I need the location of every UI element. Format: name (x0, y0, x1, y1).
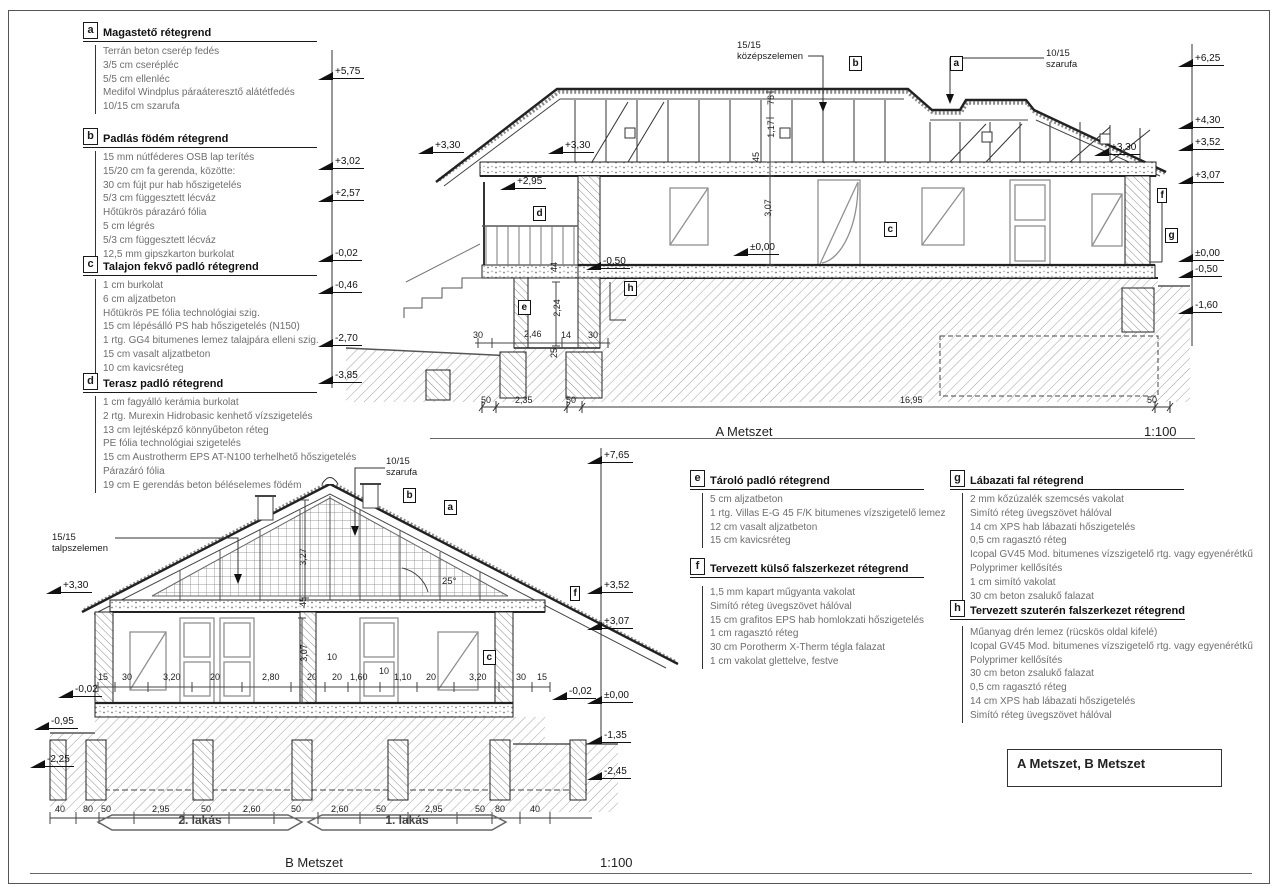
layer-reference-mark: d (533, 206, 546, 221)
dimension-label: 10 (327, 652, 337, 662)
dimension-label: 10 (379, 666, 389, 676)
level-marker: +3,02 (318, 156, 364, 169)
dimension-label: 3,27 (298, 548, 308, 566)
level-triangle-icon (318, 376, 333, 384)
dimension-label: 2,60 (243, 804, 261, 814)
level-triangle-icon (1094, 148, 1109, 156)
legend-item: 19 cm E gerendás beton béléselemes födém (103, 479, 353, 493)
level-marker: -0,02 (58, 684, 102, 697)
dimension-label: 76 (766, 95, 776, 105)
level-triangle-icon (587, 772, 602, 780)
level-triangle-icon (587, 736, 602, 744)
legend-item: 15 cm lépésálló PS hab hőszigetelés (N15… (103, 320, 353, 334)
legend-title: Tervezett külső falszerkezet rétegrend (710, 563, 908, 575)
level-triangle-icon (587, 622, 602, 630)
legend-title: Magastető rétegrend (103, 27, 211, 39)
legend-item: 1,5 mm kapart műgyanta vakolat (710, 586, 960, 600)
level-triangle-icon (34, 722, 49, 730)
level-triangle-icon (30, 760, 45, 768)
level-triangle-icon (1178, 121, 1193, 129)
legend-key-c: c (83, 256, 98, 273)
level-marker: -0,95 (34, 716, 78, 729)
level-triangle-icon (587, 456, 602, 464)
level-marker: +2,57 (318, 188, 364, 201)
level-triangle-icon (318, 162, 333, 170)
legend-item: 5/5 cm ellenléc (103, 73, 353, 87)
level-triangle-icon (1178, 270, 1193, 278)
legend-item: Simító réteg üvegszövet hálóval (970, 709, 1220, 723)
dimension-label: 3,07 (763, 199, 773, 217)
section-a-title: A Metszet (715, 424, 772, 439)
legend-item: 13 cm lejtésképző könnyűbeton réteg (103, 424, 353, 438)
legend-item: Párazáró fólia (103, 465, 353, 479)
dimension-label: 80 (495, 804, 505, 814)
legend-key-e: e (690, 470, 705, 487)
layer-reference-mark: f (570, 586, 580, 601)
layer-reference-mark: b (403, 488, 416, 503)
legend-labazati-fal: gLábazati fal rétegrend 2 mm kőzúzalék s… (950, 470, 1220, 603)
dimension-label: 45 (298, 597, 308, 607)
level-triangle-icon (587, 586, 602, 594)
legend-item: 12 cm vasalt aljzatbeton (710, 521, 960, 535)
bottom-rule (30, 873, 1252, 874)
section-b-title: B Metszet (285, 855, 343, 870)
legend-item: 5 cm aljzatbeton (710, 493, 960, 507)
level-marker: +3,07 (587, 616, 633, 629)
attic-floor-slab (480, 162, 1156, 176)
dimension-label: 50 (101, 804, 111, 814)
layer-reference-mark: f (1157, 188, 1167, 203)
level-marker: +3,30 (46, 580, 92, 593)
drawing-title-box: A Metszet, B Metszet (1007, 749, 1222, 787)
dimension-label: 20 (426, 672, 436, 682)
dimension-label: 14 (561, 330, 571, 340)
layer-reference-mark: b (849, 56, 862, 71)
legend-key-g: g (950, 470, 965, 487)
dimension-label: 3,07 (299, 644, 309, 662)
section-a-title-rule (430, 438, 1195, 439)
legend-title: Tároló padló rétegrend (710, 475, 830, 487)
layer-reference-mark: c (884, 222, 897, 237)
dimension-label: 50 (481, 395, 491, 405)
level-marker: -0,46 (318, 280, 362, 293)
legend-talajon-fekvo: cTalajon fekvő padló rétegrend 1 cm burk… (83, 256, 353, 376)
dimension-label: 3,20 (469, 672, 487, 682)
attic-structure (575, 100, 1150, 162)
dimension-label: 40 (55, 804, 65, 814)
level-triangle-icon (418, 146, 433, 154)
legend-item: 5 cm légrés (103, 220, 353, 234)
legend-item: Műanyag drén lemez (rücskös oldal kifelé… (970, 626, 1220, 640)
dimension-label: 1,17 (766, 120, 776, 138)
level-marker: +7,65 (587, 450, 633, 463)
dimension-label: 20 (210, 672, 220, 682)
legend-item: 15 mm nútféderes OSB lap terítés (103, 151, 353, 165)
dimension-label: 2,24 (552, 299, 562, 317)
level-marker: -2,70 (318, 333, 362, 346)
dimension-label: 16,95 (900, 395, 923, 405)
legend-item: Polyprimer kellősítés (970, 654, 1220, 668)
legend-item: Hőtükrös párazáró fólia (103, 206, 353, 220)
dimension-label: 80 (83, 804, 93, 814)
annotation-label: 25° (442, 576, 456, 587)
drawing-title: A Metszet, B Metszet (1017, 756, 1221, 771)
layer-reference-mark: h (624, 281, 637, 296)
legend-item: 2 mm kőzúzalék szemcsés vakolat (970, 493, 1220, 507)
legend-item: 1 cm simító vakolat (970, 576, 1220, 590)
level-triangle-icon (1178, 306, 1193, 314)
legend-item: 15/20 cm fa gerenda, közötte: (103, 165, 353, 179)
level-marker: -1,60 (1178, 300, 1222, 313)
level-triangle-icon (1178, 59, 1193, 67)
legend-item: Polyprimer kellősítés (970, 562, 1220, 576)
level-triangle-icon (318, 339, 333, 347)
ceiling-slab (110, 600, 545, 612)
dimension-label: 44 (549, 262, 559, 272)
legend-item: Icopal GV45 Mod. bitumenes vízszigetelő … (970, 640, 1220, 654)
layer-reference-mark: g (1165, 228, 1178, 243)
dimension-label: 50 (1147, 395, 1157, 405)
level-marker: +6,25 (1178, 53, 1224, 66)
annotation-label: 10/15 szarufa (1046, 48, 1077, 70)
level-triangle-icon (552, 692, 567, 700)
level-marker: -0,50 (586, 256, 630, 269)
dimension-label: 30 (516, 672, 526, 682)
dimension-label: 2,35 (515, 395, 533, 405)
legend-key-d: d (83, 373, 98, 390)
legend-item: Icopal GV45 Mod. bitumenes vízszigetelő … (970, 548, 1220, 562)
legend-title: Padlás födém rétegrend (103, 133, 228, 145)
legend-magasteto: aMagastető rétegrend Terrán beton cserép… (83, 22, 353, 114)
legend-item: 1 cm vakolat glettelve, festve (710, 655, 960, 669)
legend-item: 2 rtg. Murexin Hidrobasic kenhető vízszi… (103, 410, 353, 424)
legend-title: Tervezett szuterén falszerkezet rétegren… (970, 605, 1185, 617)
legend-item: 1 cm ragasztó réteg (710, 627, 960, 641)
annotation-label: 15/15 középszelemen (737, 40, 803, 62)
legend-item: 15 cm Austrotherm EPS AT-N100 terhelhető… (103, 451, 353, 465)
dimension-label: 2,46 (524, 329, 542, 339)
dimension-label: 30 (473, 330, 483, 340)
legend-item: 10/15 cm szarufa (103, 100, 353, 114)
level-marker: -0,02 (318, 248, 362, 261)
section-b-drawing (30, 440, 690, 882)
legend-item: Simító réteg üvegszövet hálóval (970, 507, 1220, 521)
dimension-label: 50 (291, 804, 301, 814)
legend-item: Simító réteg üvegszövet hálóval (710, 600, 960, 614)
legend-item: 5/3 cm függesztett lécváz (103, 234, 353, 248)
unit-label: 2. lakás (178, 813, 221, 827)
section-a-drawing (310, 30, 1200, 442)
level-marker: +5,75 (318, 66, 364, 79)
legend-item: 3/5 cm cserépléc (103, 59, 353, 73)
legend-szuteren-falszerkezet: hTervezett szuterén falszerkezet rétegre… (950, 600, 1220, 723)
legend-item: 0,5 cm ragasztó réteg (970, 681, 1220, 695)
legend-item: 6 cm aljzatbeton (103, 293, 353, 307)
legend-key-b: b (83, 128, 98, 145)
section-a-scale: 1:100 (1144, 424, 1177, 439)
dimension-label: 45 (751, 152, 761, 162)
dimension-label: 50 (566, 395, 576, 405)
legend-title: Lábazati fal rétegrend (970, 475, 1084, 487)
legend-item: 14 cm XPS hab lábazati hőszigetelés (970, 695, 1220, 709)
level-marker: +3,30 (418, 140, 464, 153)
annotation-label: 15/15 talpszelemen (52, 532, 108, 554)
legend-item: Terrán beton cserép fedés (103, 45, 353, 59)
dimension-label: 30 (122, 672, 132, 682)
level-marker: +3,07 (1178, 170, 1224, 183)
level-triangle-icon (1178, 254, 1193, 262)
legend-item: 14 cm XPS hab lábazati hőszigetelés (970, 521, 1220, 535)
dimension-label: 20 (307, 672, 317, 682)
legend-item: 30 cm Porotherm X-Therm tégla falazat (710, 641, 960, 655)
legend-item: 15 cm grafitos EPS hab homlokzati hőszig… (710, 614, 960, 628)
unit-arrows (98, 815, 506, 830)
dimension-label: 3,20 (163, 672, 181, 682)
level-triangle-icon (500, 182, 515, 190)
legend-item: 1 cm burkolat (103, 279, 353, 293)
floor-slab (95, 703, 513, 717)
legend-item: 30 cm beton zsalukő falazat (970, 667, 1220, 681)
dimension-label: 1,60 (350, 672, 368, 682)
level-marker: -1,35 (587, 730, 631, 743)
dimension-label: 40 (530, 804, 540, 814)
dimension-label: 2,95 (152, 804, 170, 814)
legend-item: PE fólia technológiai szigetelés (103, 437, 353, 451)
level-triangle-icon (318, 254, 333, 262)
legend-tarolo-padlo: eTároló padló rétegrend 5 cm aljzatbeton… (690, 470, 960, 548)
legend-terasz-padlo: dTerasz padló rétegrend 1 cm fagyálló ke… (83, 373, 353, 493)
dimension-label: 30 (588, 330, 598, 340)
legend-item: Medifol Windplus páraáteresztő alátétfed… (103, 86, 353, 100)
legend-item: Hőtükrös PE fólia technológiai szig. (103, 307, 353, 321)
level-marker: -0,50 (1178, 264, 1222, 277)
legend-item: 30 cm fújt pur hab hőszigetelés (103, 179, 353, 193)
dimension-label: 25 (549, 348, 559, 358)
level-marker: -2,25 (30, 754, 74, 767)
dimension-label: 1,10 (394, 672, 412, 682)
level-marker: -3,85 (318, 370, 362, 383)
level-marker: -0,02 (552, 686, 596, 699)
level-triangle-icon (318, 72, 333, 80)
level-marker: +3,30 (548, 140, 594, 153)
level-triangle-icon (318, 286, 333, 294)
legend-item: 1 rtg. Villas E-G 45 F/K bitumenes vízsz… (710, 507, 960, 521)
dimension-label: 20 (332, 672, 342, 682)
legend-key-f: f (690, 558, 705, 575)
unit-label: 1. lakás (385, 813, 428, 827)
legend-title: Talajon fekvő padló rétegrend (103, 261, 259, 273)
annotation-label: 10/15 szarufa (386, 456, 417, 478)
dimension-label: 15 (537, 672, 547, 682)
level-marker: +3,52 (1178, 137, 1224, 150)
level-marker: ±0,00 (1178, 248, 1224, 261)
layer-reference-mark: a (444, 500, 457, 515)
legend-kulso-falszerkezet: fTervezett külső falszerkezet rétegrend … (690, 558, 960, 669)
level-triangle-icon (58, 690, 73, 698)
legend-item: 5/3 cm függesztett lécváz (103, 192, 353, 206)
ground-hatch (50, 717, 618, 812)
legend-key-a: a (83, 22, 98, 39)
legend-title: Terasz padló rétegrend (103, 378, 223, 390)
level-marker: +3,52 (587, 580, 633, 593)
level-triangle-icon (733, 248, 748, 256)
level-marker: -2,45 (587, 766, 631, 779)
level-marker: +3,30 (1094, 142, 1140, 155)
level-triangle-icon (1178, 143, 1193, 151)
level-triangle-icon (46, 586, 61, 594)
legend-padlas-fodem: bPadlás födém rétegrend 15 mm nútféderes… (83, 128, 353, 261)
level-marker: ±0,00 (733, 242, 779, 255)
legend-item: 1 rtg. GG4 bitumenes lemez talajpára ell… (103, 334, 353, 348)
layer-reference-mark: c (483, 650, 496, 665)
ground-hatch (346, 278, 1190, 402)
dimension-label: 2,80 (262, 672, 280, 682)
drawing-sheet: aMagastető rétegrend Terrán beton cserép… (0, 0, 1279, 893)
level-marker: +4,30 (1178, 115, 1224, 128)
dimension-label: 2,60 (331, 804, 349, 814)
legend-item: 15 cm vasalt aljzatbeton (103, 348, 353, 362)
legend-item: 0,5 cm ragasztó réteg (970, 534, 1220, 548)
level-triangle-icon (548, 146, 563, 154)
level-triangle-icon (318, 194, 333, 202)
dimension-label: 50 (475, 804, 485, 814)
legend-key-h: h (950, 600, 965, 617)
level-triangle-icon (586, 262, 601, 270)
level-marker: +2,95 (500, 176, 546, 189)
section-b-scale: 1:100 (600, 855, 633, 870)
dimension-label: 15 (98, 672, 108, 682)
layer-reference-mark: a (950, 56, 963, 71)
legend-item: 1 cm fagyálló kerámia burkolat (103, 396, 353, 410)
layer-reference-mark: e (518, 300, 531, 315)
level-triangle-icon (1178, 176, 1193, 184)
legend-item: 15 cm kavicsréteg (710, 534, 960, 548)
